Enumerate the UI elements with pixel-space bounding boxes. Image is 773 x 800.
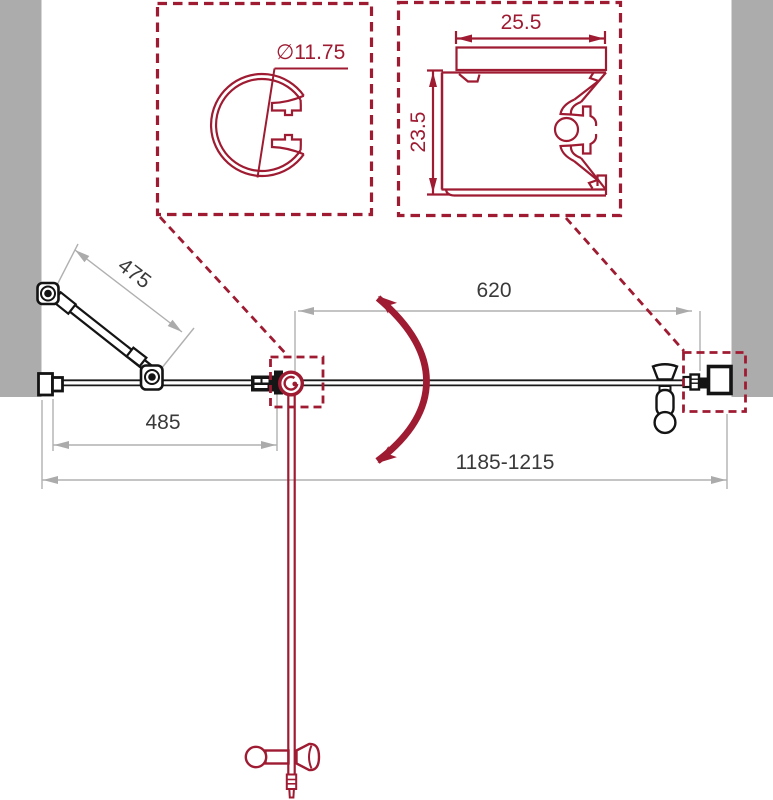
round-profile-drawing bbox=[211, 69, 348, 178]
fixed-panel-dim-label: 485 bbox=[128, 412, 198, 434]
diameter-label: ∅11.75 bbox=[276, 42, 345, 64]
wall-profile-dim-arrows bbox=[429, 35, 604, 194]
right-wall-profile bbox=[709, 367, 732, 394]
hinge bbox=[251, 371, 302, 395]
dim-620-lines bbox=[295, 311, 700, 373]
detail-callouts bbox=[158, 3, 746, 412]
right-wall bbox=[732, 0, 773, 397]
shower-door-technical-drawing: ∅11.75 25.5 23.5 475 485 620 1185-1215 bbox=[0, 0, 773, 800]
drawing-linework bbox=[0, 0, 773, 800]
towel-bar-handle bbox=[246, 394, 319, 798]
door-panel-dim-label: 620 bbox=[459, 280, 529, 302]
detail-box-left bbox=[158, 4, 372, 215]
mount-pin bbox=[691, 375, 700, 390]
bar-tip-fitting bbox=[287, 775, 296, 790]
leader-right bbox=[566, 218, 684, 351]
handle-bar bbox=[266, 751, 289, 764]
handle-end-cap bbox=[246, 747, 266, 767]
leader-left bbox=[160, 217, 287, 355]
profile-height-label: 23.5 bbox=[408, 106, 430, 158]
handle-knob bbox=[297, 744, 320, 770]
support-bar-assembly bbox=[38, 283, 163, 390]
overall-width-dim-label: 1185-1215 bbox=[440, 452, 570, 474]
hinge-pivot bbox=[280, 372, 303, 395]
left-wall-profile bbox=[39, 374, 63, 396]
right-wall-mount bbox=[684, 367, 732, 394]
left-wall bbox=[0, 0, 42, 397]
glass-plane-line bbox=[258, 69, 275, 178]
wall-profile-drawing bbox=[427, 31, 606, 196]
profile-width-label: 25.5 bbox=[494, 12, 548, 34]
door-knob bbox=[653, 364, 677, 433]
